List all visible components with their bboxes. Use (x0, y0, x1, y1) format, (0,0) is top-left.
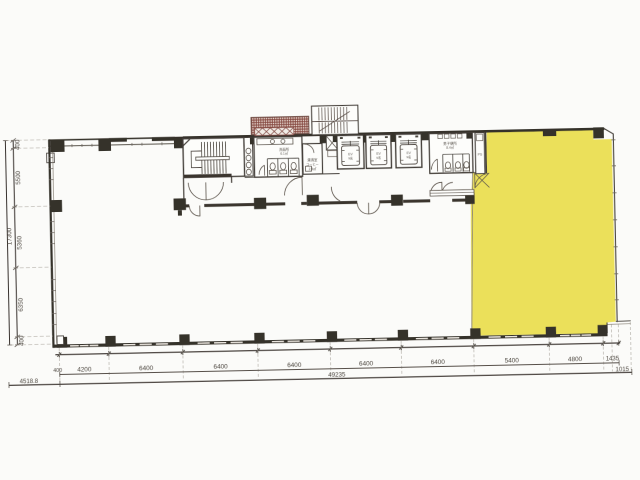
svg-text:5500: 5500 (15, 170, 22, 184)
svg-text:6.1㎡: 6.1㎡ (280, 151, 289, 156)
svg-text:4800: 4800 (568, 356, 583, 363)
svg-text:4518.8: 4518.8 (20, 379, 39, 385)
svg-text:400: 400 (18, 335, 25, 346)
svg-text:6350: 6350 (18, 297, 25, 311)
svg-text:400: 400 (53, 368, 62, 374)
svg-text:PS: PS (478, 153, 482, 157)
svg-text:5400: 5400 (505, 357, 520, 364)
svg-text:6400: 6400 (359, 360, 374, 367)
svg-text:1435: 1435 (606, 356, 620, 362)
svg-text:6400: 6400 (431, 359, 446, 366)
svg-text:5360: 5360 (16, 235, 23, 249)
svg-text:6400: 6400 (139, 365, 154, 372)
svg-text:9名: 9名 (406, 154, 411, 159)
svg-text:6400: 6400 (287, 362, 302, 369)
svg-text:9名: 9名 (348, 155, 353, 160)
svg-text:400: 400 (14, 139, 21, 150)
svg-text:6400: 6400 (213, 363, 228, 370)
svg-text:2.5㎡: 2.5㎡ (309, 166, 318, 171)
svg-text:湯沸室: 湯沸室 (307, 157, 318, 162)
svg-text:49235: 49235 (328, 371, 346, 378)
svg-text:9名: 9名 (376, 155, 381, 160)
svg-text:17300: 17300 (6, 227, 13, 245)
svg-text:4200: 4200 (77, 366, 92, 373)
svg-text:8.4㎡: 8.4㎡ (446, 145, 455, 150)
